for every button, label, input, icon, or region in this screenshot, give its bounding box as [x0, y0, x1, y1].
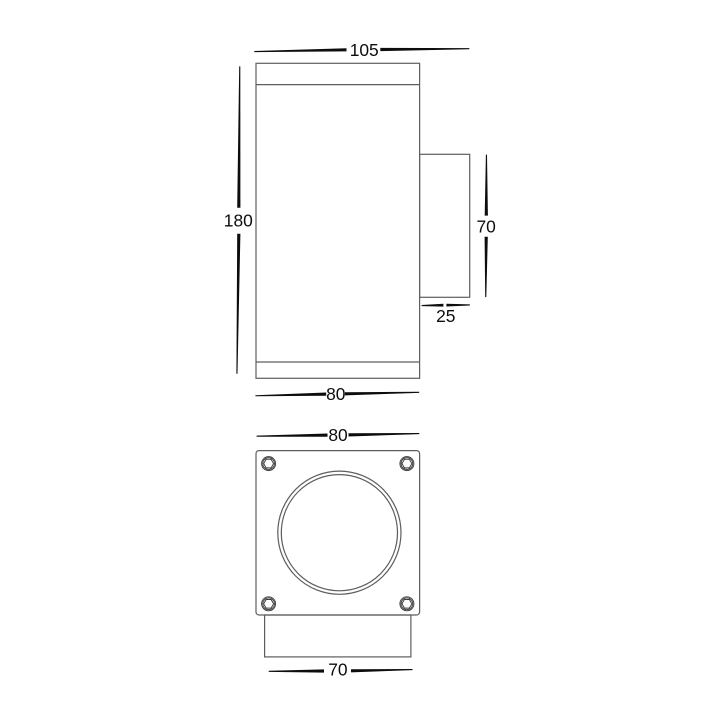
svg-text:80: 80: [328, 425, 347, 445]
svg-text:180: 180: [224, 211, 253, 231]
svg-text:70: 70: [477, 216, 496, 236]
svg-text:80: 80: [326, 384, 345, 404]
svg-text:105: 105: [350, 40, 379, 60]
svg-text:25: 25: [436, 306, 455, 326]
svg-text:70: 70: [328, 660, 347, 680]
